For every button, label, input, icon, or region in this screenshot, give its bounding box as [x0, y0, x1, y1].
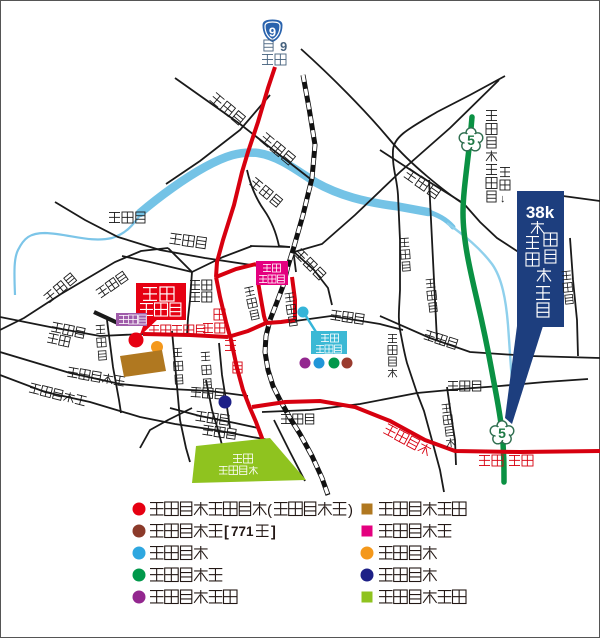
svg-text:[: [: [224, 525, 229, 541]
svg-text:]: ]: [271, 525, 276, 541]
svg-text:38k: 38k: [526, 203, 555, 222]
svg-text:771: 771: [231, 524, 254, 539]
svg-text:): ): [348, 502, 353, 519]
svg-text:5: 5: [498, 425, 506, 441]
svg-text:5: 5: [467, 132, 475, 148]
svg-text:(: (: [267, 502, 272, 519]
svg-text:9: 9: [280, 39, 287, 54]
svg-text:↓: ↓: [500, 193, 506, 205]
svg-text:9: 9: [269, 25, 276, 40]
